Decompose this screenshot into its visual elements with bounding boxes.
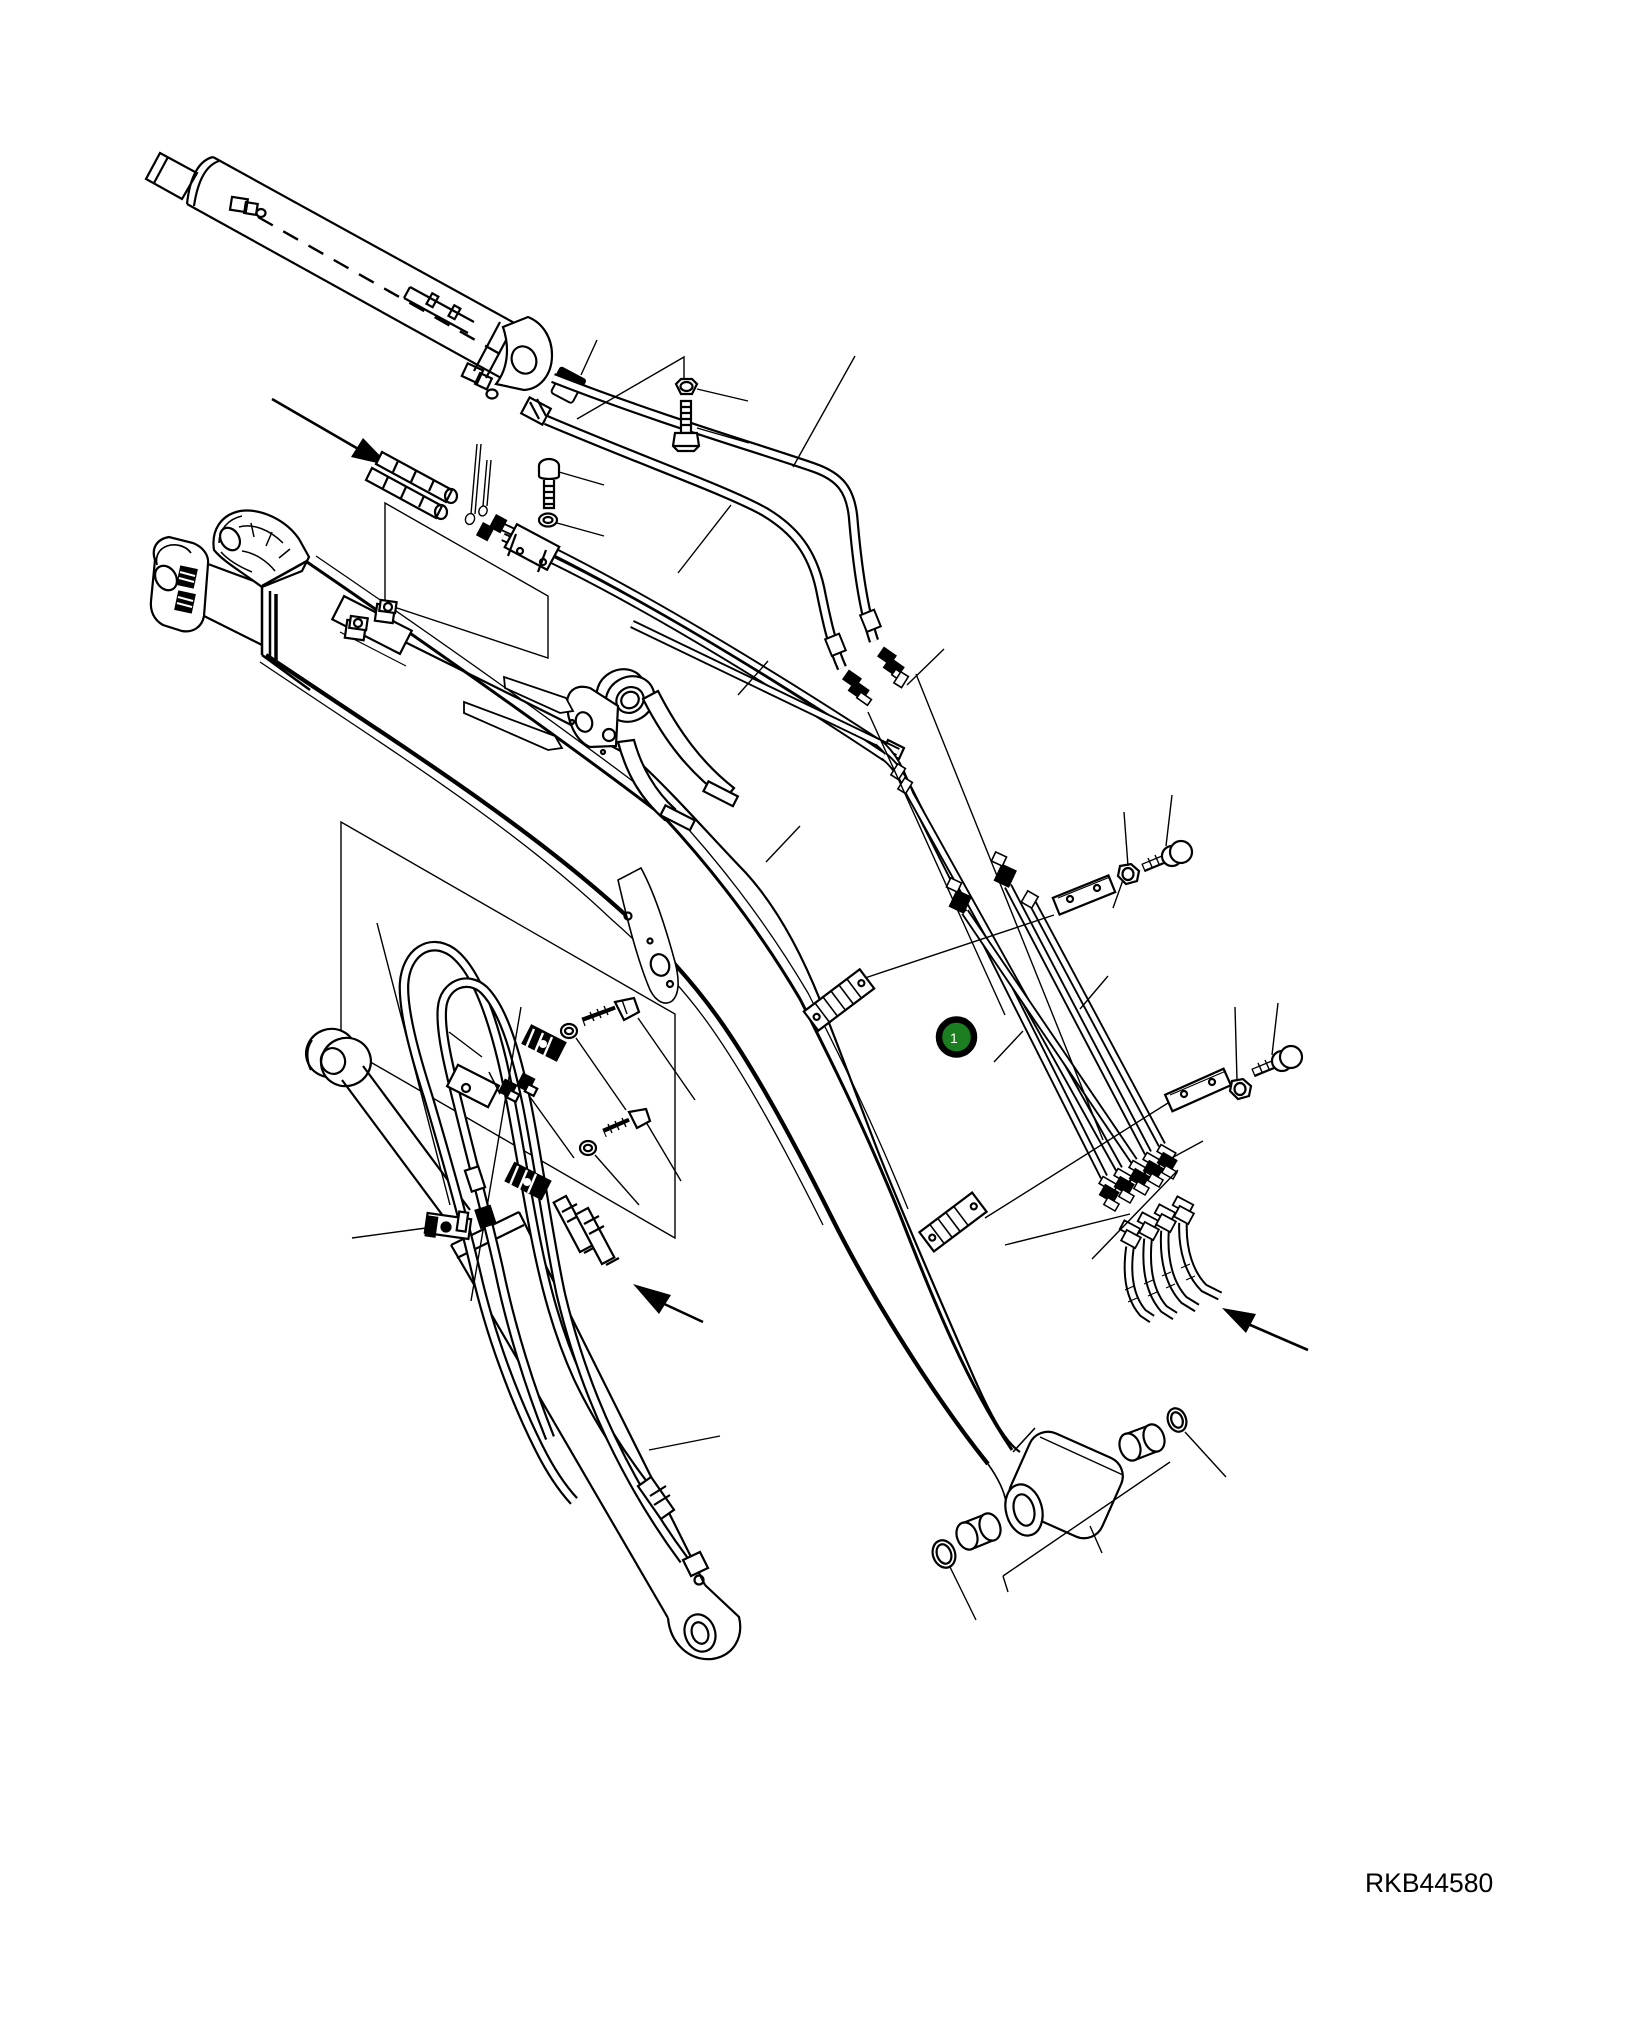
svg-text:1: 1	[950, 1030, 958, 1046]
svg-text:RKB44580: RKB44580	[1365, 1868, 1493, 1898]
